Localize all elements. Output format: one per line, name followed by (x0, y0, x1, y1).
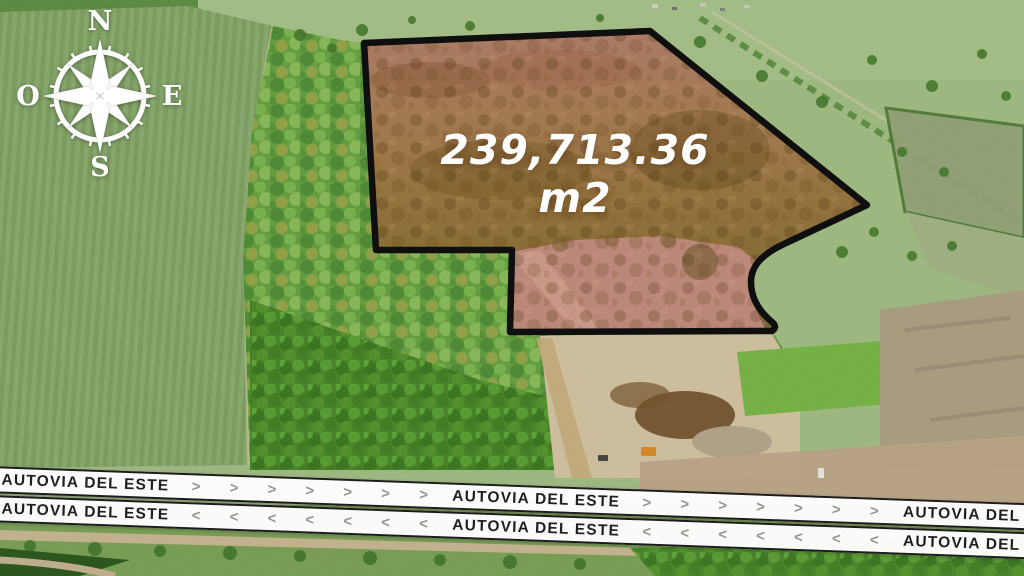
road-label: AUTOVIA DEL ESTE (1, 471, 169, 495)
compass-label-north: N (88, 6, 113, 37)
road-label: AUTOVIA DEL ESTE (903, 532, 1024, 556)
compass-rose: N E S O (14, 4, 186, 180)
compass-label-west: O (16, 81, 40, 112)
area-label: 239,713.36 m2 (400, 126, 750, 222)
chevrons-left: < < < < < < < (169, 507, 453, 534)
chevrons-left: < < < < < < < (620, 523, 904, 550)
road-label: AUTOVIA DEL ESTE (1, 500, 169, 524)
compass-label-south: S (90, 152, 110, 180)
compass-label-east: E (162, 81, 183, 112)
road-label: AUTOVIA DEL ESTE (452, 516, 620, 540)
road-label: AUTOVIA DEL ESTE (903, 503, 1024, 527)
chevrons-right: > > > > > > > (620, 494, 904, 521)
chevrons-right: > > > > > > > (169, 478, 453, 505)
road-label: AUTOVIA DEL ESTE (452, 487, 620, 511)
aerial-photo: N E S O 239,713.36 m2 AUTOVIA DEL ESTE >… (0, 0, 1024, 576)
compass-cardinal-points (42, 38, 158, 154)
